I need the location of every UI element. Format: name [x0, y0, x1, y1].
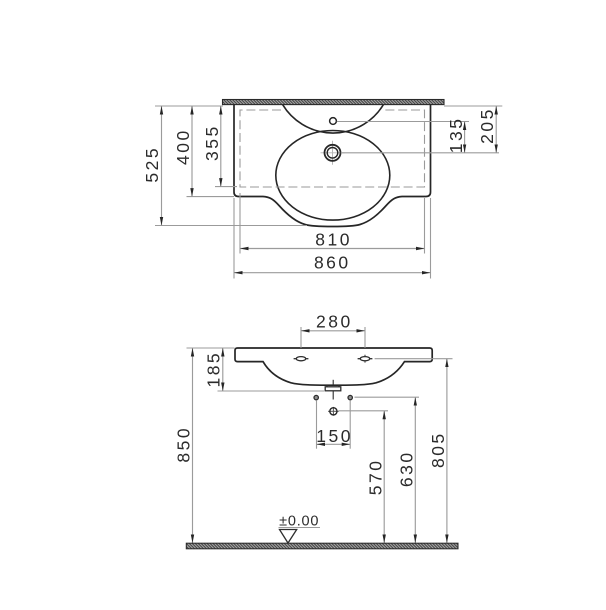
svg-text:400: 400 — [173, 128, 193, 165]
svg-text:630: 630 — [397, 450, 417, 487]
svg-text:150: 150 — [316, 426, 353, 446]
svg-text:280: 280 — [316, 312, 353, 332]
svg-text:860: 860 — [314, 253, 351, 273]
svg-text:810: 810 — [315, 229, 352, 249]
svg-text:850: 850 — [174, 426, 194, 463]
svg-text:570: 570 — [365, 459, 385, 496]
svg-text:185: 185 — [204, 351, 224, 388]
svg-text:±0.00: ±0.00 — [279, 514, 319, 530]
svg-text:205: 205 — [477, 107, 497, 144]
svg-text:135: 135 — [446, 117, 466, 154]
svg-text:355: 355 — [202, 124, 222, 161]
svg-text:525: 525 — [142, 146, 162, 183]
svg-text:805: 805 — [428, 431, 448, 468]
